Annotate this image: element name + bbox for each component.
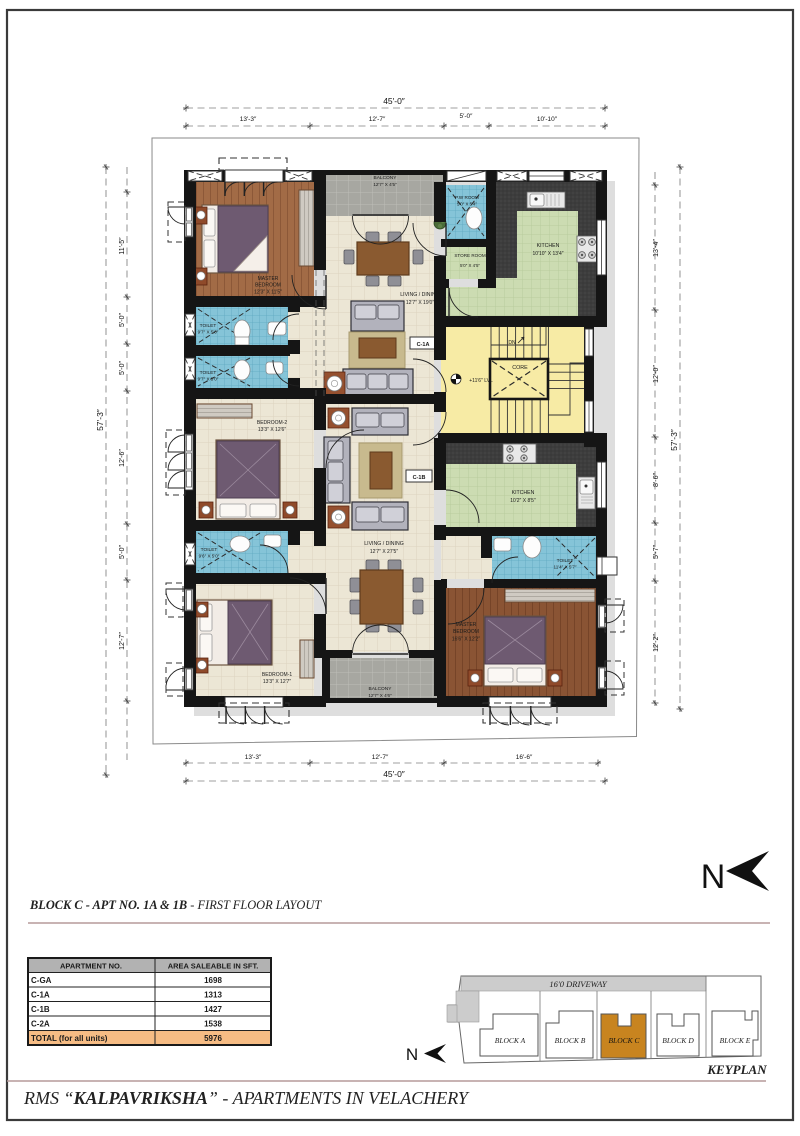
svg-text:11′-5″: 11′-5″ — [119, 237, 126, 255]
svg-text:BLOCK E: BLOCK E — [720, 1036, 751, 1045]
svg-text:12′-7″: 12′-7″ — [372, 754, 389, 761]
svg-text:TOTAL (for all units): TOTAL (for all units) — [31, 1034, 108, 1043]
svg-text:C-1B: C-1B — [413, 475, 426, 481]
svg-text:P.W ROOM: P.W ROOM — [455, 195, 479, 200]
svg-text:16′-6″: 16′-6″ — [516, 754, 533, 761]
svg-text:9′7″ X 5′0″: 9′7″ X 5′0″ — [198, 377, 219, 382]
svg-text:12′-7″: 12′-7″ — [119, 632, 126, 650]
svg-text:8′-6″: 8′-6″ — [653, 473, 660, 487]
svg-text:TOILET: TOILET — [557, 558, 574, 564]
svg-text:10′10″ X 13′4″: 10′10″ X 13′4″ — [533, 251, 564, 257]
svg-text:BEDROOM-2: BEDROOM-2 — [257, 420, 288, 426]
svg-text:16′0 DRIVEWAY: 16′0 DRIVEWAY — [549, 979, 607, 989]
svg-text:DN: DN — [508, 340, 516, 346]
svg-text:KITCHEN: KITCHEN — [537, 243, 560, 249]
svg-text:BLOCK C - APT NO. 1A & 1B - FI: BLOCK C - APT NO. 1A & 1B - FIRST FLOOR … — [29, 898, 322, 912]
svg-text:KEYPLAN: KEYPLAN — [706, 1062, 767, 1077]
svg-text:RMS “KALPAVRIKSHA” - APARTMENT: RMS “KALPAVRIKSHA” - APARTMENTS IN VELAC… — [23, 1088, 470, 1108]
svg-text:45′-0″: 45′-0″ — [383, 769, 405, 779]
svg-text:12′7″ X 27′5″: 12′7″ X 27′5″ — [370, 549, 398, 555]
svg-text:TOILET: TOILET — [200, 370, 217, 376]
svg-text:1427: 1427 — [204, 1005, 222, 1014]
svg-text:MASTER: MASTER — [258, 276, 279, 282]
svg-text:N: N — [406, 1045, 418, 1064]
svg-text:45′-0″: 45′-0″ — [383, 96, 405, 106]
svg-text:TOILET: TOILET — [201, 547, 218, 553]
svg-text:LIVING / DINING: LIVING / DINING — [400, 292, 440, 298]
svg-text:1698: 1698 — [204, 976, 222, 985]
svg-text:10′-10″: 10′-10″ — [537, 116, 558, 123]
svg-text:9′7″ X 5′0″: 9′7″ X 5′0″ — [198, 330, 219, 335]
svg-text:BALCONY: BALCONY — [369, 686, 393, 692]
svg-text:C-2A: C-2A — [31, 1020, 50, 1029]
svg-text:KITCHEN: KITCHEN — [512, 490, 535, 496]
svg-text:12′3″ X 11′5″: 12′3″ X 11′5″ — [254, 290, 282, 296]
svg-text:BALCONY: BALCONY — [374, 175, 398, 181]
svg-text:APARTMENT NO.: APARTMENT NO. — [60, 962, 122, 971]
svg-text:10′2″ X 8′5″: 10′2″ X 8′5″ — [510, 498, 536, 504]
svg-text:11′4″ X 5′7″: 11′4″ X 5′7″ — [553, 565, 576, 570]
svg-text:57′-3″: 57′-3″ — [669, 429, 679, 451]
svg-text:BLOCK B: BLOCK B — [555, 1036, 586, 1045]
svg-text:C-1B: C-1B — [31, 1005, 50, 1014]
svg-text:BLOCK D: BLOCK D — [662, 1036, 694, 1045]
svg-text:TOILET: TOILET — [200, 323, 217, 329]
svg-text:BEDROOM: BEDROOM — [255, 283, 281, 289]
svg-text:5′-7″: 5′-7″ — [653, 545, 660, 559]
svg-text:1313: 1313 — [204, 991, 222, 1000]
svg-text:13′3″ X 12′6″: 13′3″ X 12′6″ — [258, 427, 286, 433]
svg-text:BLOCK A: BLOCK A — [495, 1036, 526, 1045]
svg-text:13′-3″: 13′-3″ — [240, 116, 257, 123]
svg-text:16′6″ X 12′2″: 16′6″ X 12′2″ — [452, 637, 480, 643]
svg-text:9′6″ X 5′0″: 9′6″ X 5′0″ — [199, 554, 220, 559]
svg-text:12′-0″: 12′-0″ — [653, 365, 660, 383]
svg-text:12′-7″: 12′-7″ — [369, 116, 386, 123]
svg-text:BLOCK C: BLOCK C — [608, 1036, 640, 1045]
svg-text:12′7″ X 4′6″: 12′7″ X 4′6″ — [368, 693, 392, 698]
svg-text:12′-6″: 12′-6″ — [119, 449, 126, 467]
svg-text:STORE ROOM: STORE ROOM — [454, 253, 485, 258]
svg-text:5′-0″: 5′-0″ — [119, 545, 126, 559]
svg-text:C-GA: C-GA — [31, 976, 52, 985]
svg-text:C-1A: C-1A — [417, 342, 430, 348]
svg-text:13′-4″: 13′-4″ — [653, 239, 660, 257]
svg-text:5′-0″: 5′-0″ — [119, 313, 126, 327]
svg-text:12′7″ X 19′0″: 12′7″ X 19′0″ — [406, 300, 434, 306]
svg-text:5′-0″: 5′-0″ — [460, 113, 474, 120]
svg-text:CORE: CORE — [512, 365, 528, 371]
svg-text:13′-3″: 13′-3″ — [245, 754, 262, 761]
svg-text:BEDROOM-1: BEDROOM-1 — [262, 672, 293, 678]
svg-text:+11′6″ LVL: +11′6″ LVL — [469, 378, 493, 384]
svg-text:12′7″ X 4′5″: 12′7″ X 4′5″ — [373, 182, 397, 187]
svg-text:13′3″ X 12′7″: 13′3″ X 12′7″ — [263, 679, 291, 685]
svg-text:5′0″ X 4′5″: 5′0″ X 4′5″ — [460, 263, 480, 268]
svg-text:1538: 1538 — [204, 1020, 222, 1029]
svg-text:5′-0″: 5′-0″ — [119, 361, 126, 375]
svg-text:AREA SALEABLE IN SFT.: AREA SALEABLE IN SFT. — [168, 962, 259, 971]
svg-text:5976: 5976 — [204, 1034, 222, 1043]
svg-text:BEDROOM: BEDROOM — [453, 629, 479, 635]
svg-text:N: N — [701, 858, 726, 896]
svg-text:C-1A: C-1A — [31, 991, 50, 1000]
svg-text:5′0″ X 5′4″: 5′0″ X 5′4″ — [457, 202, 477, 207]
svg-text:57′-3″: 57′-3″ — [95, 409, 105, 431]
svg-text:LIVING / DINING: LIVING / DINING — [364, 541, 404, 547]
svg-text:12′-2″: 12′-2″ — [653, 634, 660, 652]
